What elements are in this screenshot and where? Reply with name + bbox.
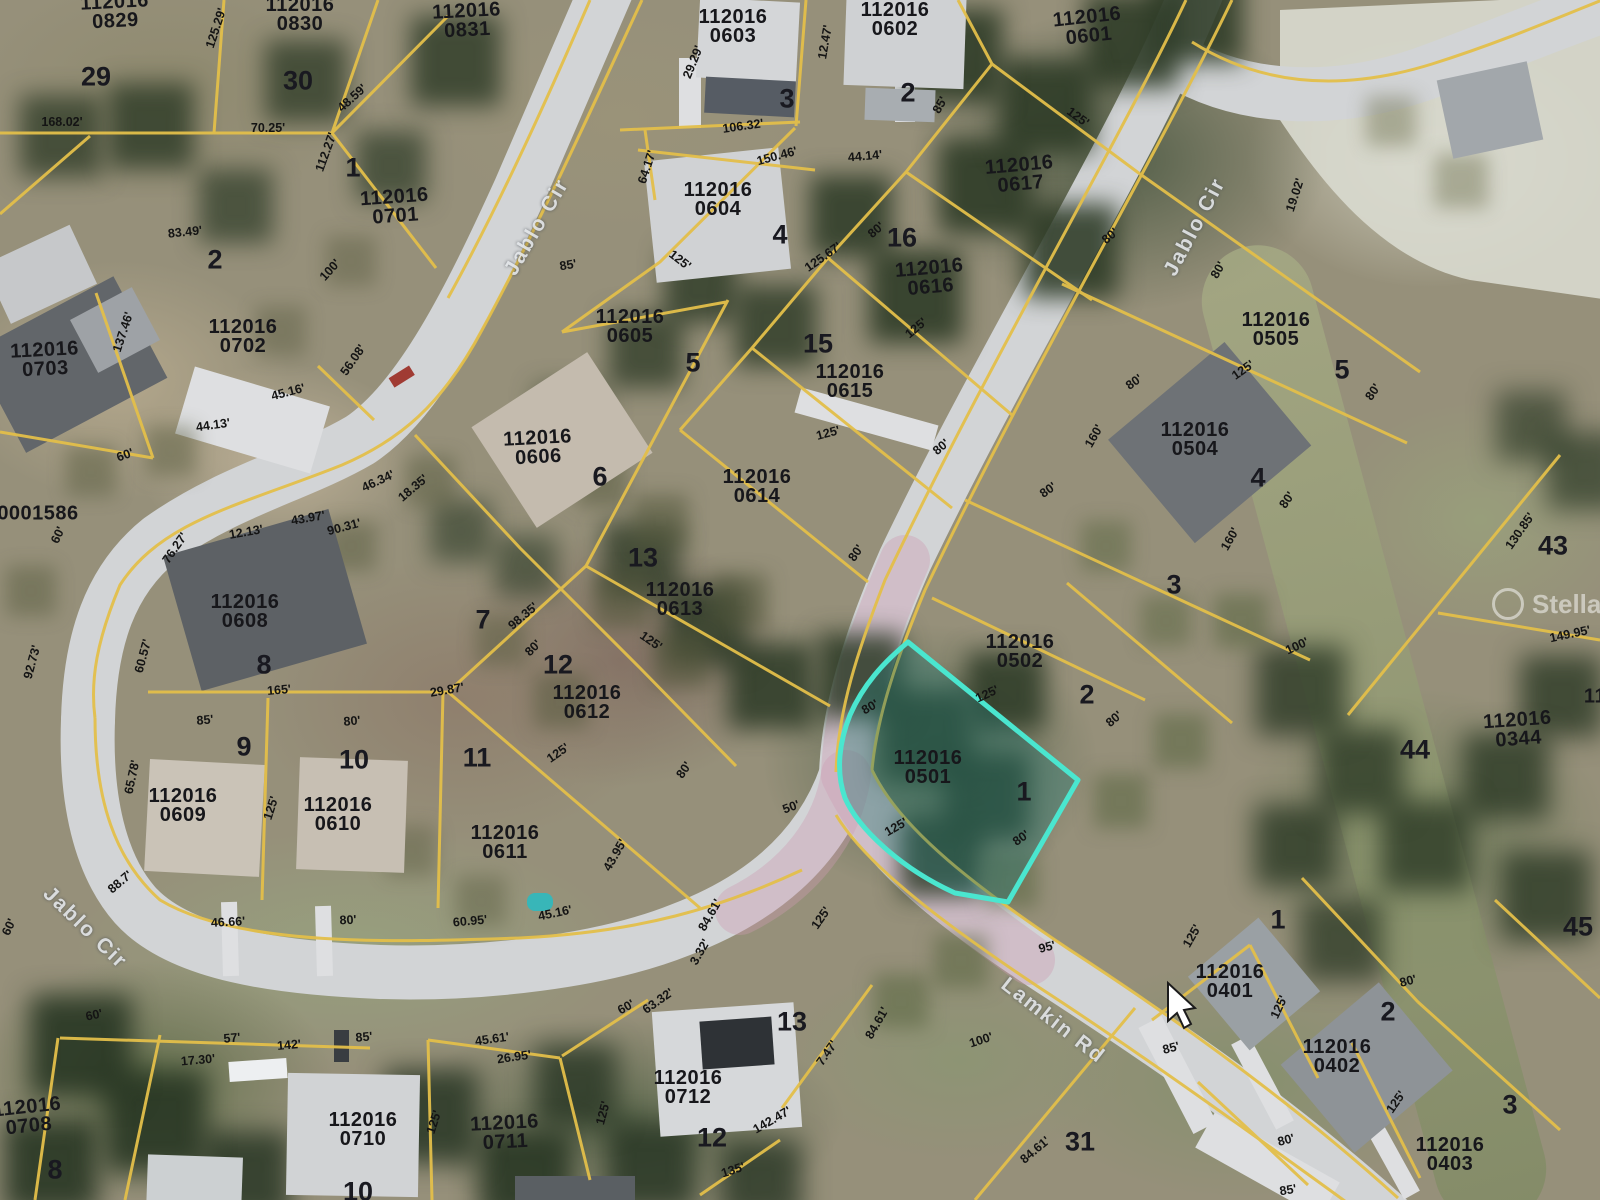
lot-number: 30	[283, 66, 313, 97]
dimension-label: 57'	[223, 1030, 241, 1045]
lot-number: 1	[345, 153, 360, 184]
dimension-label: 46.66'	[211, 914, 246, 930]
lot-number: 5	[1334, 355, 1349, 386]
dimension-label: 80'	[339, 913, 357, 928]
lot-number: 2	[900, 78, 915, 109]
parcel-id-label: 112016 0608	[211, 593, 280, 631]
parcel-id-label: 112016 0712	[654, 1069, 723, 1107]
parcel-id-label: 112016 0402	[1303, 1038, 1372, 1076]
parcel-id-label: 11	[1584, 688, 1600, 707]
lot-number: 10	[343, 1177, 373, 1200]
parcel-id-label: 112016 0606	[503, 427, 574, 469]
dimension-label: 60.95'	[452, 913, 487, 930]
parcel-id-label: 112016 0505	[1242, 311, 1311, 349]
lot-number: 2	[1380, 997, 1395, 1028]
parcel-id-label: 112016 0401	[1196, 963, 1265, 1001]
dimension-label: 85'	[355, 1029, 373, 1044]
dimension-label: 70.25'	[251, 121, 285, 135]
parcel-id-label: 112016 0614	[723, 468, 792, 506]
dimension-label: 85'	[1278, 1182, 1297, 1199]
parcel-id-label: 112016 0601	[1052, 5, 1124, 50]
lot-number: 12	[697, 1123, 727, 1154]
parcel-id-label: 112016 0615	[816, 363, 885, 401]
lot-number: 6	[592, 462, 607, 493]
parcel-id-label: 112016 0605	[596, 308, 665, 346]
lot-number: 5	[685, 348, 700, 379]
parcel-id-label: 112016 0616	[894, 256, 966, 300]
dimension-label: 168.02'	[41, 115, 82, 129]
parcel-id-label: 112016 0703	[10, 339, 81, 381]
lot-number: 1	[1270, 905, 1285, 936]
lot-number: 8	[256, 650, 271, 681]
parcel-id-label: 112016 0609	[149, 787, 218, 825]
lot-number: 3	[779, 84, 794, 115]
lot-number: 2	[207, 245, 222, 276]
dimension-label: 165'	[267, 682, 292, 698]
aerial-parcel-map[interactable]: 112016 0829112016 0830112016 0831112016 …	[0, 0, 1600, 1200]
lot-number: 12	[543, 650, 573, 681]
parcel-id-label: 112016 0610	[304, 796, 373, 834]
lot-number: 3	[1502, 1090, 1517, 1121]
parcel-id-label: 112016 0701	[359, 186, 430, 229]
lot-number: 2	[1079, 680, 1094, 711]
lot-number: 45	[1563, 912, 1593, 943]
lot-number: 29	[81, 62, 111, 93]
lot-number: 8	[47, 1155, 62, 1186]
parcel-id-label: 112016 0710	[329, 1111, 398, 1149]
lot-number: 1	[1016, 777, 1031, 808]
parcel-id-label: 112016 0613	[646, 581, 715, 619]
parcel-id-label: 112016 0702	[209, 318, 278, 356]
watermark: Stellar MLS	[1492, 588, 1600, 620]
lot-number: 44	[1400, 735, 1430, 766]
lot-number: 4	[772, 220, 787, 251]
lot-number: 10	[339, 745, 369, 776]
lot-number: 11	[463, 743, 492, 774]
lot-number: 13	[628, 543, 658, 574]
parcel-id-label: 0001586	[0, 505, 79, 524]
parcel-id-label: 112016 0612	[553, 684, 622, 722]
dimension-label: 17.30'	[180, 1052, 215, 1069]
lot-number: 16	[887, 223, 917, 254]
parcel-id-label: 112016 0711	[470, 1112, 541, 1154]
lot-number: 15	[803, 329, 833, 360]
parcel-id-label: 112016 0830	[266, 0, 335, 34]
dimension-label: 85'	[558, 257, 577, 274]
parcel-id-label: 112016 0831	[432, 0, 503, 42]
parcel-id-label: 112016 0603	[699, 8, 768, 46]
dimension-label: 44.14'	[847, 148, 882, 165]
lot-number: 13	[777, 1007, 807, 1038]
watermark-text: Stellar MLS	[1532, 589, 1600, 620]
parcel-id-label: 112016 0502	[986, 633, 1055, 671]
parcel-id-label: 112016 0829	[80, 0, 151, 33]
watermark-logo-icon	[1492, 588, 1524, 620]
lot-number: 3	[1166, 570, 1181, 601]
parcel-id-label: 112016 0504	[1161, 421, 1230, 459]
parcel-id-label: 112016 0403	[1416, 1136, 1485, 1174]
lot-number: 43	[1538, 531, 1568, 562]
parcel-id-label: 112016 0617	[984, 153, 1056, 197]
parcel-id-label: 112016 0604	[684, 181, 753, 219]
parcel-id-label: 112016 0602	[861, 1, 930, 39]
parcel-id-label: 112016 0344	[1482, 709, 1553, 752]
parcel-id-label: 112016 0501	[894, 749, 963, 787]
parcel-id-label: 112016 0611	[471, 824, 540, 862]
dimension-label: 85'	[196, 712, 214, 727]
dimension-label: 80'	[343, 713, 361, 728]
dimension-label: 142'	[277, 1037, 302, 1053]
lot-number: 7	[475, 605, 490, 636]
parcel-id-label: 112016 0708	[0, 1095, 64, 1140]
lot-number: 4	[1250, 463, 1265, 494]
lot-number: 31	[1065, 1127, 1095, 1158]
lot-number: 9	[236, 732, 251, 763]
